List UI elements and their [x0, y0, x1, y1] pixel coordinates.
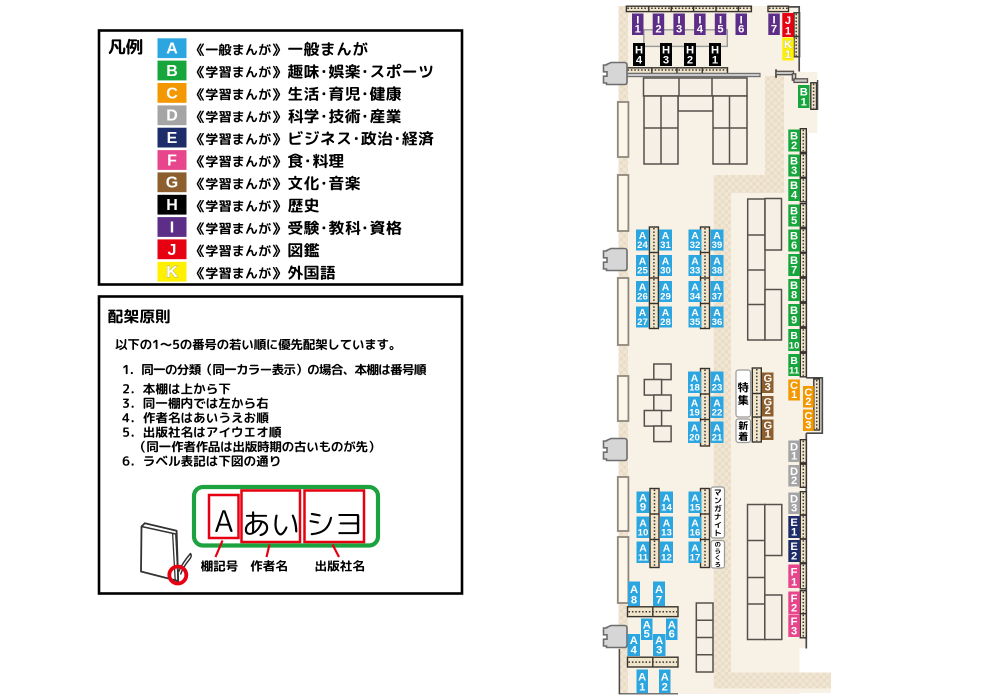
svg-text:6: 6: [738, 23, 744, 35]
svg-text:4: 4: [636, 54, 643, 66]
svg-text:J: J: [168, 242, 177, 259]
svg-text:E: E: [167, 130, 178, 147]
svg-text:14: 14: [661, 502, 672, 513]
svg-text:2: 2: [662, 681, 668, 693]
svg-text:1: 1: [791, 576, 797, 588]
svg-text:2: 2: [791, 475, 797, 487]
svg-text:13: 13: [661, 527, 672, 538]
svg-text:37: 37: [712, 291, 723, 302]
svg-text:2: 2: [655, 23, 661, 35]
svg-text:34: 34: [690, 291, 701, 302]
svg-text:2: 2: [765, 405, 771, 417]
svg-text:1: 1: [712, 54, 718, 66]
svg-text:17: 17: [690, 552, 701, 563]
svg-text:3: 3: [676, 23, 682, 35]
svg-text:26: 26: [637, 291, 648, 302]
svg-text:5: 5: [717, 23, 723, 35]
svg-text:5: 5: [644, 628, 650, 640]
svg-text:10: 10: [789, 340, 800, 351]
svg-text:18: 18: [689, 382, 700, 393]
svg-text:27: 27: [637, 317, 648, 328]
svg-text:31: 31: [660, 240, 671, 251]
svg-text:C: C: [166, 85, 178, 102]
svg-text:36: 36: [712, 317, 723, 328]
svg-text:30: 30: [660, 265, 671, 276]
svg-text:4: 4: [631, 644, 638, 656]
svg-text:29: 29: [660, 291, 671, 302]
svg-text:25: 25: [637, 265, 648, 276]
svg-text:5: 5: [791, 215, 797, 227]
svg-text:1: 1: [791, 526, 797, 538]
svg-text:32: 32: [690, 240, 701, 251]
svg-text:1: 1: [639, 681, 645, 693]
svg-text:15: 15: [690, 502, 701, 513]
svg-text:7: 7: [791, 264, 797, 276]
svg-text:24: 24: [637, 240, 648, 251]
svg-text:4: 4: [791, 189, 798, 201]
svg-text:28: 28: [660, 317, 671, 328]
svg-text:9: 9: [640, 501, 646, 513]
svg-text:3: 3: [663, 54, 669, 66]
svg-text:23: 23: [712, 382, 723, 393]
svg-text:4: 4: [697, 23, 704, 35]
svg-text:D: D: [166, 108, 178, 125]
svg-text:3: 3: [765, 381, 771, 393]
svg-text:H: H: [166, 197, 178, 214]
svg-text:3: 3: [656, 644, 662, 656]
svg-text:7: 7: [656, 594, 662, 606]
svg-text:1: 1: [791, 389, 797, 401]
svg-text:21: 21: [712, 432, 723, 443]
svg-text:7: 7: [771, 23, 777, 35]
svg-text:F: F: [167, 152, 177, 169]
svg-text:3: 3: [791, 625, 797, 637]
svg-text:16: 16: [690, 527, 701, 538]
svg-text:35: 35: [690, 317, 701, 328]
svg-text:8: 8: [791, 289, 797, 301]
svg-text:3: 3: [791, 502, 797, 514]
svg-text:G: G: [166, 175, 178, 192]
svg-text:3: 3: [805, 419, 811, 431]
svg-text:1: 1: [785, 25, 791, 37]
svg-text:B: B: [166, 63, 178, 80]
svg-text:19: 19: [689, 407, 700, 418]
svg-text:2: 2: [791, 550, 797, 562]
svg-text:9: 9: [791, 314, 797, 326]
svg-text:2: 2: [791, 140, 797, 152]
svg-text:1: 1: [635, 23, 641, 35]
svg-text:1: 1: [791, 450, 797, 462]
svg-text:1: 1: [785, 49, 791, 61]
svg-text:20: 20: [689, 432, 700, 443]
svg-text:11: 11: [638, 552, 649, 563]
svg-text:2: 2: [687, 54, 693, 66]
svg-text:1: 1: [801, 96, 807, 108]
svg-text:38: 38: [712, 265, 723, 276]
svg-text:11: 11: [789, 365, 800, 376]
svg-text:6: 6: [791, 240, 797, 252]
svg-text:33: 33: [690, 265, 701, 276]
svg-text:2: 2: [805, 396, 811, 408]
svg-text:2: 2: [791, 602, 797, 614]
svg-text:1: 1: [765, 428, 771, 440]
svg-text:A: A: [166, 41, 178, 58]
svg-text:K: K: [166, 264, 178, 281]
svg-text:8: 8: [631, 594, 637, 606]
svg-text:I: I: [170, 219, 174, 236]
svg-text:39: 39: [712, 240, 723, 251]
svg-text:6: 6: [669, 628, 675, 640]
svg-text:12: 12: [661, 552, 672, 563]
svg-text:10: 10: [638, 527, 649, 538]
svg-text:3: 3: [791, 165, 797, 177]
svg-text:22: 22: [712, 407, 723, 418]
